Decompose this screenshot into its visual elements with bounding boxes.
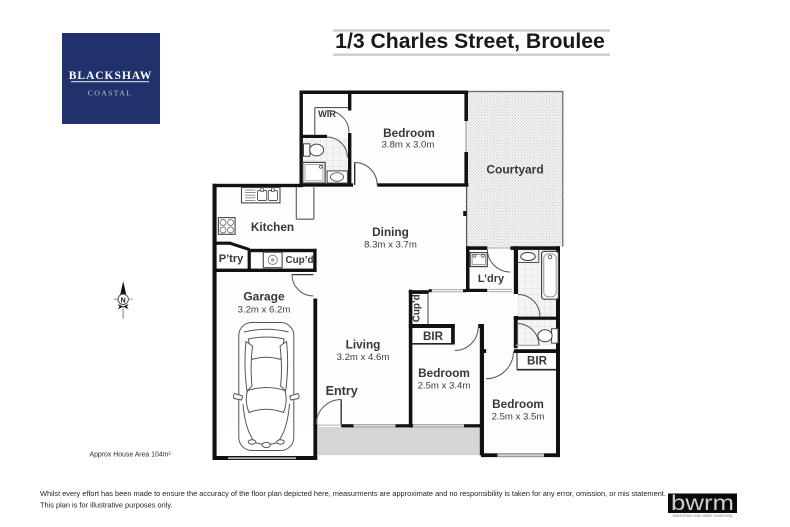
svg-text:L’dry: L’dry xyxy=(478,273,505,285)
svg-text:This plan is for illustrative: This plan is for illustrative purposes o… xyxy=(40,501,173,510)
svg-text:Cup’d: Cup’d xyxy=(412,294,423,322)
svg-text:BLACKSHAW: BLACKSHAW xyxy=(69,69,152,82)
svg-text:2.5m x 3.4m: 2.5m x 3.4m xyxy=(418,381,471,392)
svg-text:Approx House Area 104m²: Approx House Area 104m² xyxy=(90,451,172,458)
svg-text:BIR: BIR xyxy=(527,355,548,368)
svg-text:WIR: WIR xyxy=(318,109,336,119)
svg-text:Bedroom: Bedroom xyxy=(492,397,544,411)
svg-text:8.3m x 3.7m: 8.3m x 3.7m xyxy=(364,240,417,251)
svg-text:Dining: Dining xyxy=(372,225,409,239)
svg-text:Bedroom: Bedroom xyxy=(418,366,470,380)
svg-text:3.2m x 6.2m: 3.2m x 6.2m xyxy=(238,305,291,316)
svg-text:P’try: P’try xyxy=(219,253,244,265)
svg-text:Living: Living xyxy=(346,338,381,352)
svg-text:3.2m x 4.6m: 3.2m x 4.6m xyxy=(337,352,390,363)
svg-text:BIR: BIR xyxy=(423,330,444,343)
svg-text:3.8m x 3.0m: 3.8m x 3.0m xyxy=(382,140,435,151)
svg-text:Whilst every effort has been m: Whilst every effort has been made to ens… xyxy=(40,489,666,498)
svg-text:N: N xyxy=(121,298,126,305)
svg-text:Entry: Entry xyxy=(326,384,358,398)
svg-text:blackshaw real estate marketin: blackshaw real estate marketing xyxy=(673,513,733,518)
svg-text:Cup’d: Cup’d xyxy=(286,255,314,266)
svg-text:2.5m x 3.5m: 2.5m x 3.5m xyxy=(492,412,545,423)
svg-text:bwrm: bwrm xyxy=(671,492,734,515)
svg-text:Courtyard: Courtyard xyxy=(486,163,543,177)
svg-text:COASTAL: COASTAL xyxy=(88,88,132,97)
svg-text:Garage: Garage xyxy=(243,290,285,304)
svg-text:Kitchen: Kitchen xyxy=(251,220,294,234)
svg-text:Bedroom: Bedroom xyxy=(383,126,435,140)
svg-text:1/3 Charles Street, Broulee: 1/3 Charles Street, Broulee xyxy=(335,30,605,53)
